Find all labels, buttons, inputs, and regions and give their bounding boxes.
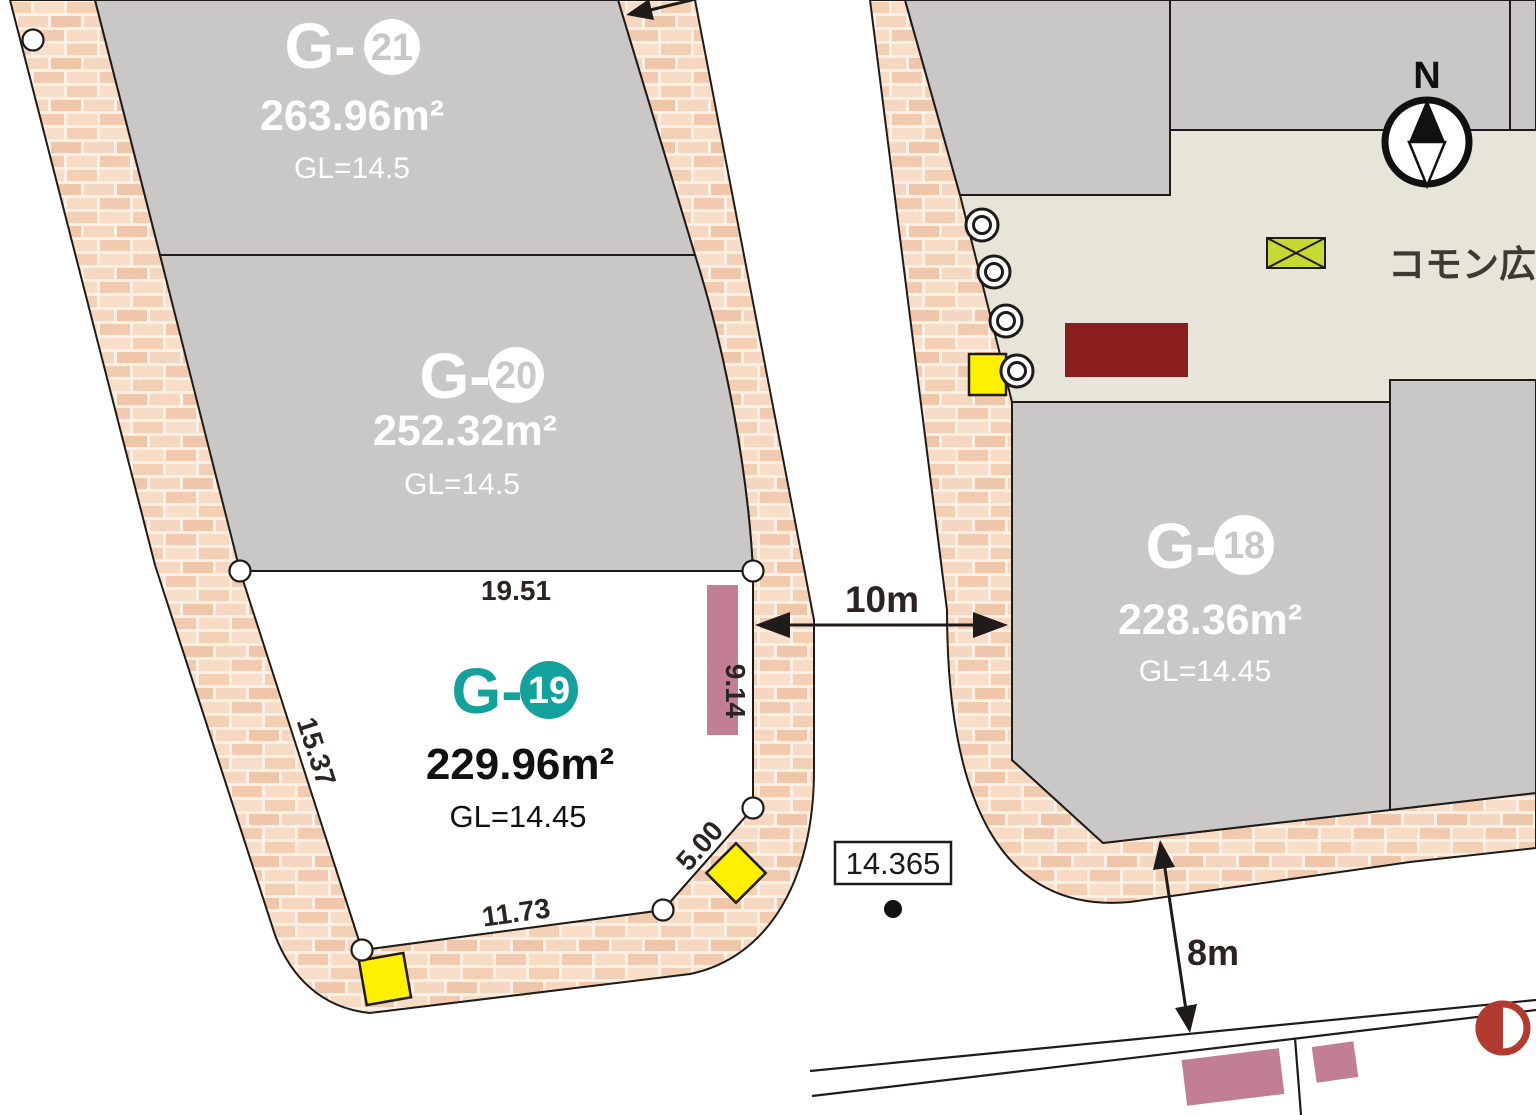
double-circle-icon [1001, 355, 1033, 387]
building-c [1510, 0, 1536, 130]
double-circle-icon [990, 305, 1022, 337]
planting-bed-icon [1267, 238, 1325, 268]
white-circle-icon [653, 900, 674, 921]
site-plan-svg: 10m 8m 19.51 15.37 11.73 5.00 9.14 14.36… [0, 0, 1536, 1115]
lot-g20-area-unit: m² [504, 407, 557, 455]
lot-g21-number: 21 [371, 27, 413, 69]
survey-point-icon [884, 900, 902, 918]
double-circle-icon [978, 256, 1010, 288]
lot-g21-letter: G- [284, 10, 355, 82]
road-width-label: 10m [845, 579, 919, 620]
planting-strip-small [1312, 1041, 1359, 1082]
lot-g21-area-value: 263.96 [260, 92, 392, 140]
white-circle-icon [352, 940, 373, 961]
lot-g20-area-value: 252.32 [373, 407, 505, 455]
lot-g21-area: 263.96m² [260, 92, 444, 140]
plaza-structure-red [1065, 323, 1188, 377]
white-circle-icon [230, 561, 251, 582]
dim-right: 9.14 [720, 664, 751, 719]
compass-label: N [1413, 55, 1440, 97]
utility-box-southwest [359, 953, 411, 1005]
lot-g18-letter: G- [1145, 510, 1216, 582]
benchmark-value: 14.365 [846, 846, 941, 881]
lot-g19-area-unit: m² [560, 740, 614, 789]
lot-g21-gl: GL=14.5 [294, 152, 410, 185]
lot-g19-area: 229.96m² [426, 740, 614, 789]
lot-g18-area-value: 228.36 [1118, 596, 1250, 644]
setback-label: 8m [1187, 932, 1239, 973]
lot-g20-number: 20 [495, 355, 537, 397]
lot-g18-area: 228.36m² [1118, 596, 1302, 644]
lot-g19-letter: G- [451, 655, 522, 727]
dim-top: 19.51 [481, 575, 551, 606]
lot-g18-area-unit: m² [1249, 596, 1302, 644]
lot-g19-area-value: 229.96 [426, 740, 561, 789]
site-plan-map: 10m 8m 19.51 15.37 11.73 5.00 9.14 14.36… [0, 0, 1536, 1115]
plaza-label: コモン広場 [1388, 244, 1536, 285]
white-circle-icon [743, 561, 764, 582]
lot-g19-number: 19 [528, 670, 570, 712]
lot-g20-letter: G- [419, 340, 490, 412]
double-circle-icon [966, 209, 998, 241]
lot-g21-area-unit: m² [391, 92, 444, 140]
white-circle-icon [743, 798, 764, 819]
lot-g20-gl: GL=14.5 [404, 468, 520, 501]
lot-g19-gl: GL=14.45 [449, 799, 586, 834]
lot-g20-area: 252.32m² [373, 407, 557, 455]
lot-g18-gl: GL=14.45 [1139, 655, 1272, 688]
lot-east-shape [1390, 380, 1536, 810]
white-circle-icon [23, 30, 44, 51]
lot-g18-number: 18 [1223, 525, 1265, 567]
